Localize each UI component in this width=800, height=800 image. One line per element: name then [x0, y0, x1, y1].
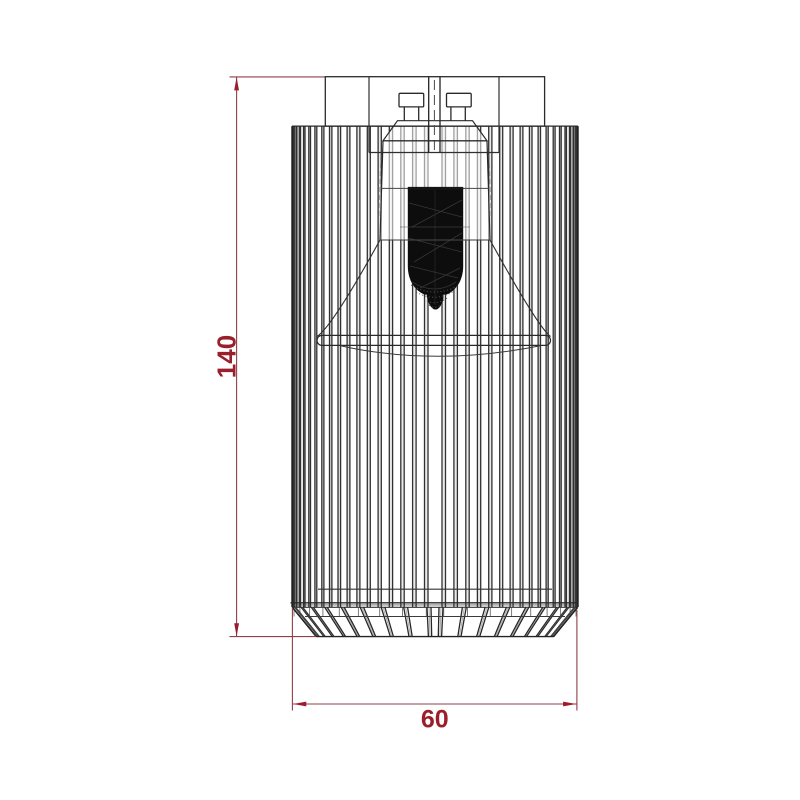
svg-text:140: 140: [212, 335, 242, 378]
svg-text:60: 60: [421, 706, 449, 734]
